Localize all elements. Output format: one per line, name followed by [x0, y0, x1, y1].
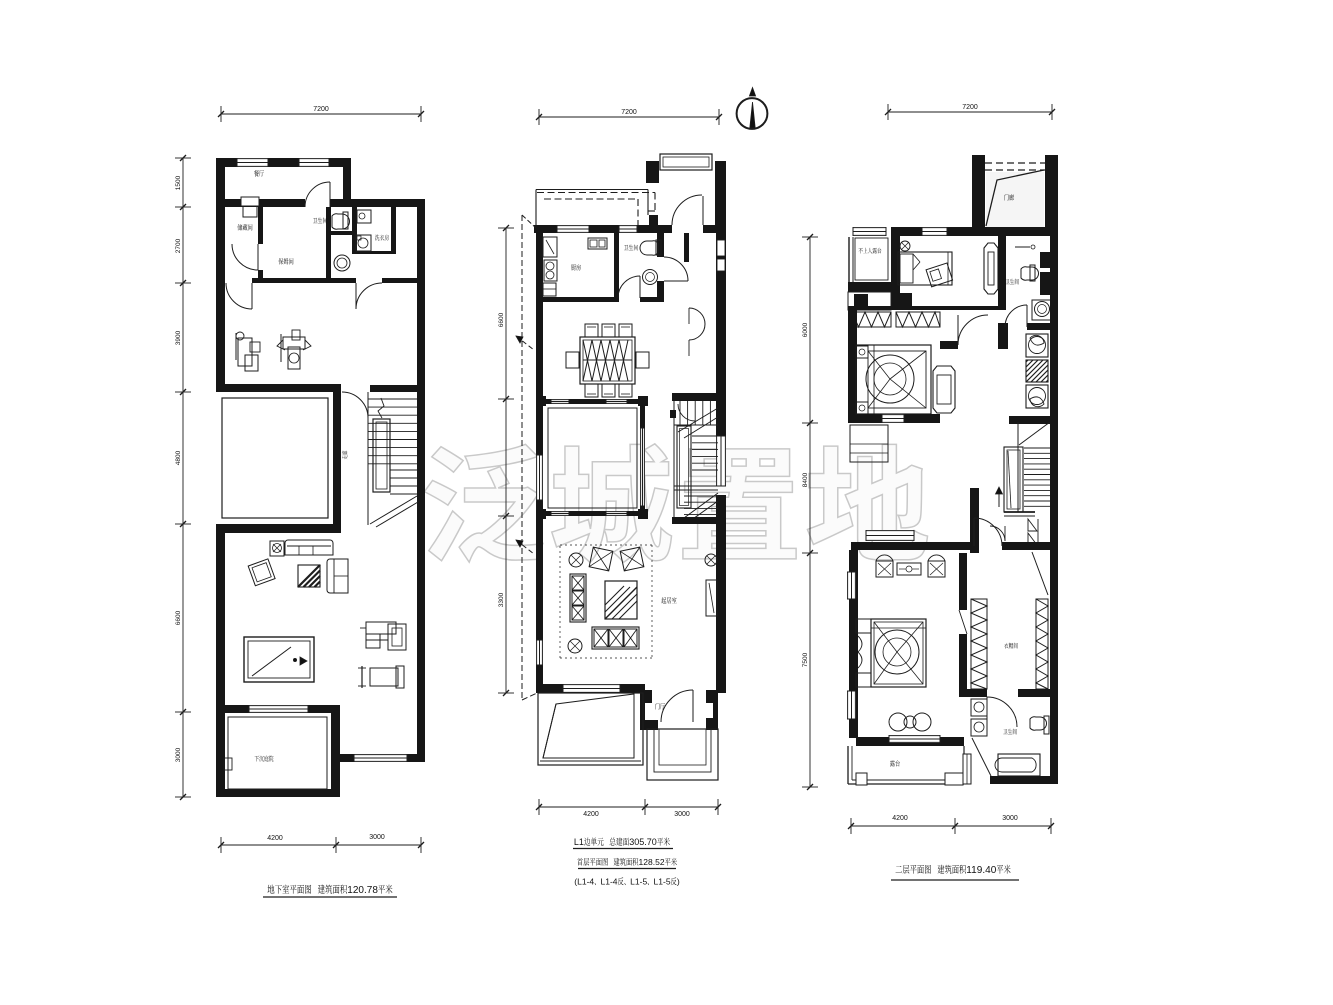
- svg-text:7200: 7200: [962, 104, 978, 111]
- svg-text:4200: 4200: [267, 835, 283, 842]
- svg-text:7500: 7500: [802, 652, 809, 667]
- svg-text:6600: 6600: [175, 610, 182, 625]
- svg-text:305.70: 305.70: [629, 837, 657, 847]
- svg-text:3900: 3900: [175, 330, 182, 345]
- svg-text:3300: 3300: [498, 592, 505, 607]
- svg-text:L1-4: L1-4: [600, 877, 617, 887]
- svg-text:L1-5: L1-5: [630, 877, 647, 887]
- svg-text:1500: 1500: [175, 175, 182, 190]
- svg-text:3000: 3000: [1002, 815, 1018, 822]
- svg-text:2700: 2700: [175, 238, 182, 253]
- svg-text:): ): [677, 877, 680, 887]
- svg-text:4200: 4200: [892, 815, 908, 822]
- svg-text:8400: 8400: [802, 472, 809, 487]
- svg-text:3000: 3000: [369, 834, 385, 841]
- svg-text:3000: 3000: [674, 811, 690, 818]
- svg-text:4200: 4200: [583, 811, 599, 818]
- svg-text:120.78: 120.78: [347, 885, 378, 896]
- svg-text:L1: L1: [574, 837, 584, 847]
- svg-text:4800: 4800: [175, 450, 182, 465]
- svg-text:L1-5: L1-5: [654, 877, 671, 887]
- svg-text:7200: 7200: [621, 109, 637, 116]
- svg-text:119.40: 119.40: [966, 865, 997, 876]
- svg-text:7200: 7200: [313, 106, 329, 113]
- svg-text:128.52: 128.52: [639, 857, 665, 867]
- svg-text:3000: 3000: [175, 747, 182, 762]
- svg-text:(L1-4: (L1-4: [574, 877, 594, 887]
- svg-text:6600: 6600: [498, 312, 505, 327]
- svg-text:6000: 6000: [802, 322, 809, 337]
